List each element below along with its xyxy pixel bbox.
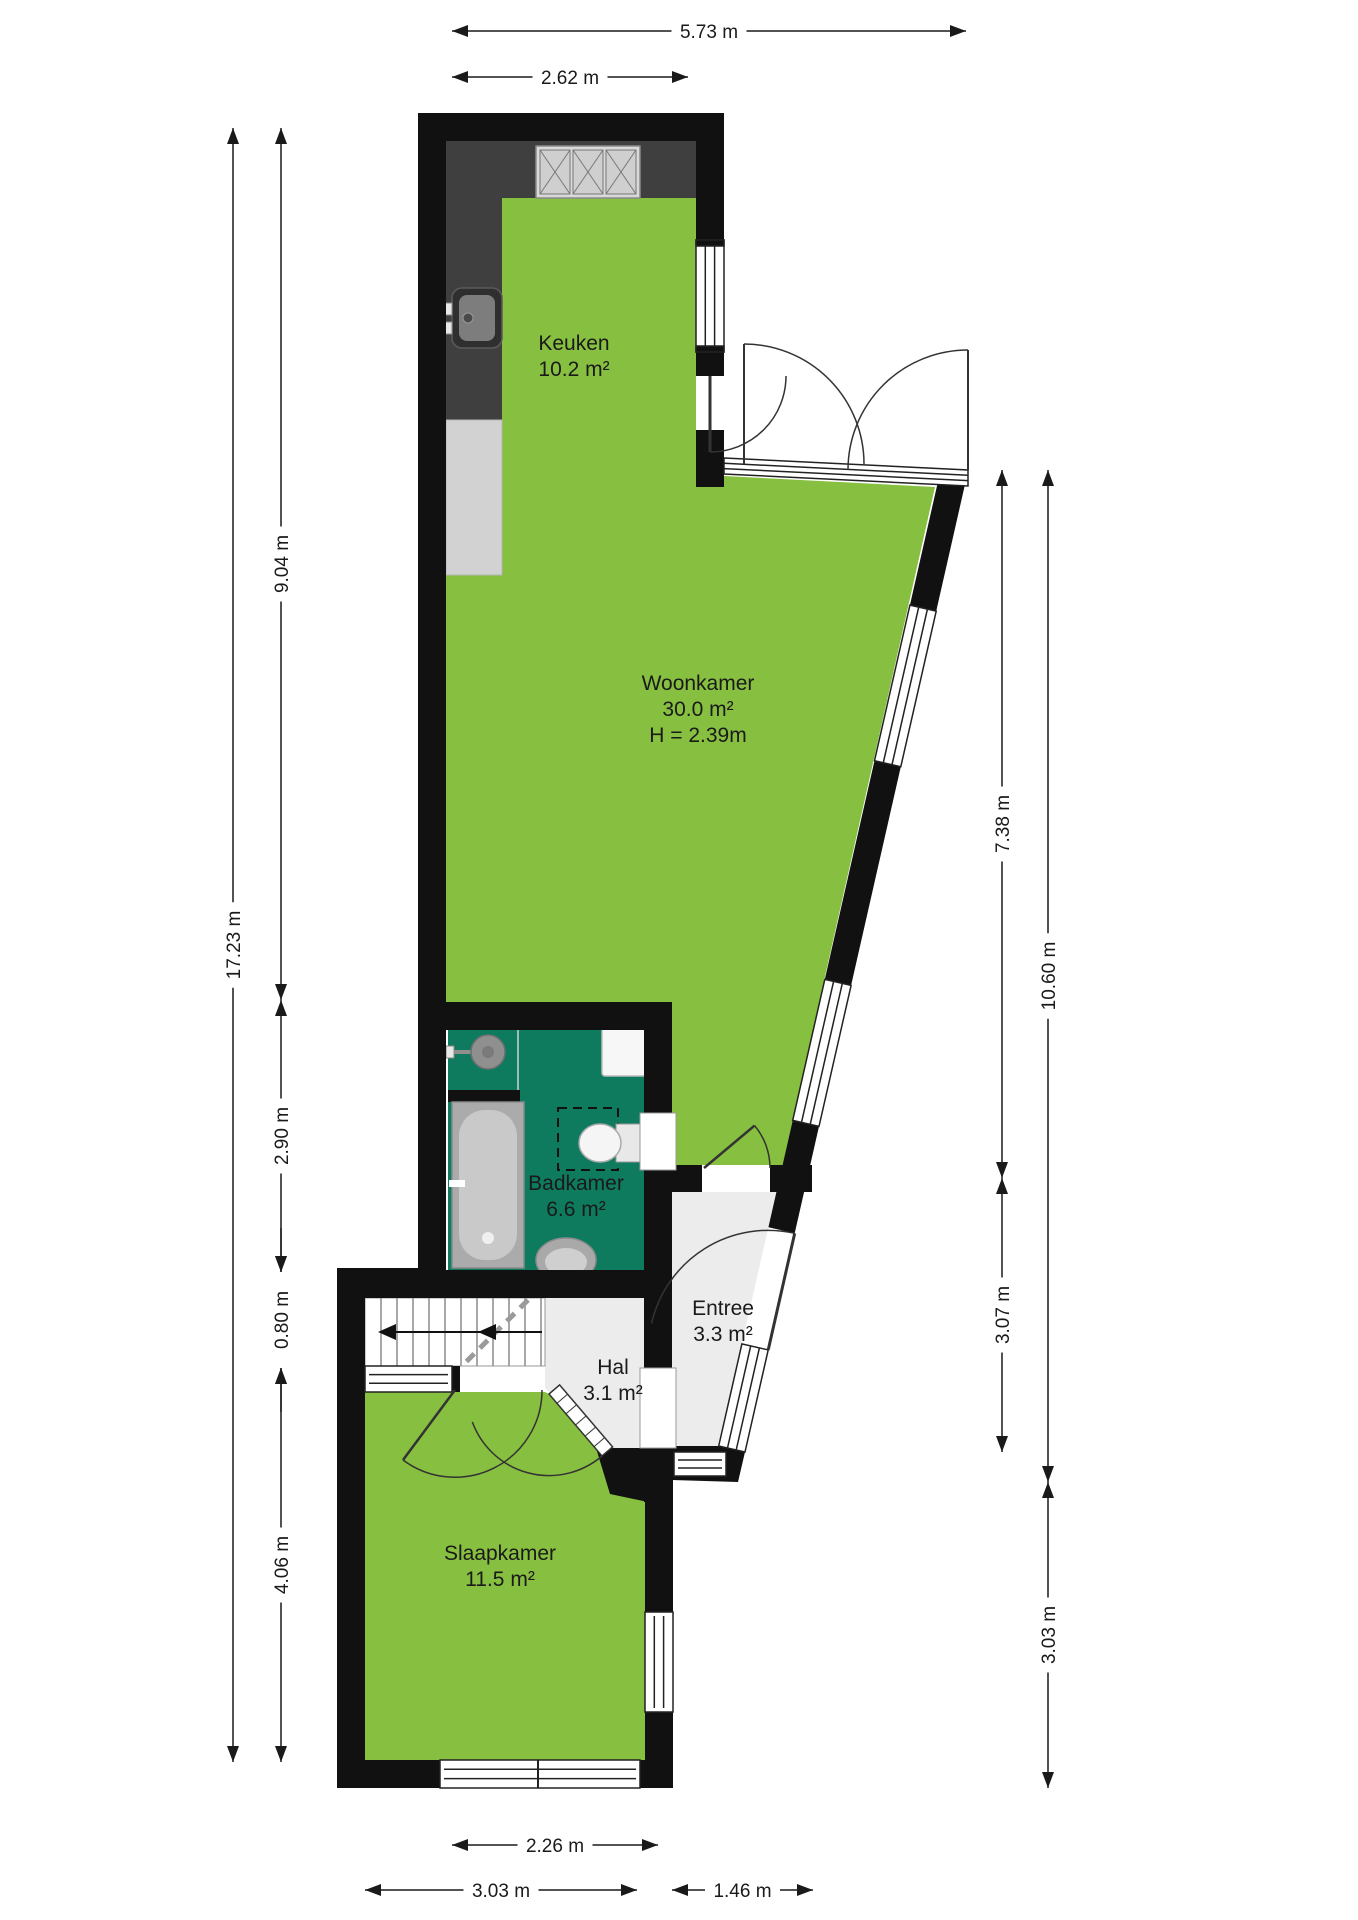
room-height-note: H = 2.39m <box>649 724 746 747</box>
room-name: Hal <box>597 1356 629 1379</box>
dimension-value: 2.26 m <box>526 1836 584 1857</box>
dimension-value: 0.80 m <box>272 1291 293 1349</box>
dimension-value: 1.46 m <box>713 1881 771 1902</box>
dimension-value: 3.03 m <box>472 1881 530 1902</box>
kitchen-sink-icon <box>443 288 502 348</box>
dimension-value: 5.73 m <box>680 22 738 43</box>
floor-plan: Keuken10.2 m²Woonkamer30.0 m²H = 2.39mBa… <box>0 0 1358 1920</box>
dimension: 9.04 m <box>268 128 293 1000</box>
room-name: Woonkamer <box>642 672 755 695</box>
dimension-value: 7.38 m <box>993 795 1014 853</box>
dimension: 1.46 m <box>672 1877 813 1902</box>
toilet-icon <box>579 1124 642 1162</box>
dimension: 2.26 m <box>452 1832 658 1857</box>
dimension: 7.38 m <box>989 470 1014 1178</box>
dimension: 3.07 m <box>989 1178 1014 1452</box>
bathtub-icon <box>449 1102 524 1268</box>
door-opening <box>640 1368 676 1448</box>
room-name: Badkamer <box>528 1172 624 1195</box>
window <box>674 1452 726 1476</box>
room-name: Keuken <box>538 332 609 355</box>
dimension: 4.06 m <box>268 1368 293 1762</box>
dimension-value: 4.06 m <box>272 1536 293 1594</box>
dimension-value: 2.90 m <box>272 1107 293 1165</box>
room-area: 30.0 m² <box>662 698 733 721</box>
dimension-value: 17.23 m <box>224 911 245 980</box>
window <box>645 1612 673 1712</box>
room-area: 6.6 m² <box>546 1198 606 1221</box>
window <box>365 1366 452 1392</box>
bathroom-stub-wall <box>448 1090 520 1102</box>
dimension-value: 3.07 m <box>993 1286 1014 1344</box>
dimension-value: 2.62 m <box>541 68 599 89</box>
dimension: 5.73 m <box>452 18 966 43</box>
room-area: 11.5 m² <box>465 1568 535 1591</box>
dimension-value: 10.60 m <box>1039 942 1060 1011</box>
room-name: Entree <box>692 1297 754 1320</box>
room-area: 10.2 m² <box>538 358 609 381</box>
dimension: 10.60 m <box>1035 470 1060 1482</box>
dimension: 3.03 m <box>365 1877 637 1902</box>
dimension-value: 3.03 m <box>1039 1606 1060 1664</box>
door-swing <box>744 344 968 470</box>
room-area: 3.3 m² <box>693 1323 753 1346</box>
room-area: 3.1 m² <box>583 1382 643 1405</box>
room-name: Slaapkamer <box>444 1542 556 1565</box>
stove-icon <box>536 146 640 198</box>
dimension: 2.62 m <box>452 64 688 89</box>
dimension-value: 9.04 m <box>272 535 293 593</box>
dimension: 3.03 m <box>1035 1482 1060 1788</box>
window <box>696 240 724 352</box>
kitchen-cabinet <box>446 420 502 575</box>
stairs <box>365 1298 545 1366</box>
dimension: 17.23 m <box>220 128 245 1762</box>
door-opening <box>640 1113 676 1170</box>
window <box>440 1760 640 1788</box>
